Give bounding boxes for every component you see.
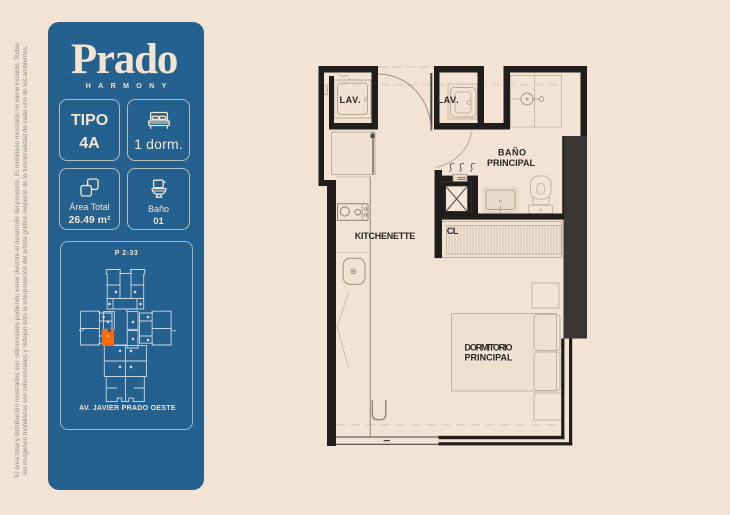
svg-text:KITCHENETTE: KITCHENETTE (355, 231, 416, 241)
svg-text:LAV.: LAV. (340, 95, 361, 105)
svg-text:PRINCIPAL: PRINCIPAL (465, 352, 514, 362)
svg-text:BAÑO: BAÑO (498, 148, 526, 158)
svg-text:CL: CL (447, 226, 459, 236)
svg-text:LAV.: LAV. (438, 95, 459, 105)
svg-text:PRINCIPAL: PRINCIPAL (487, 158, 536, 168)
svg-text:DORMITORIO: DORMITORIO (465, 343, 513, 353)
